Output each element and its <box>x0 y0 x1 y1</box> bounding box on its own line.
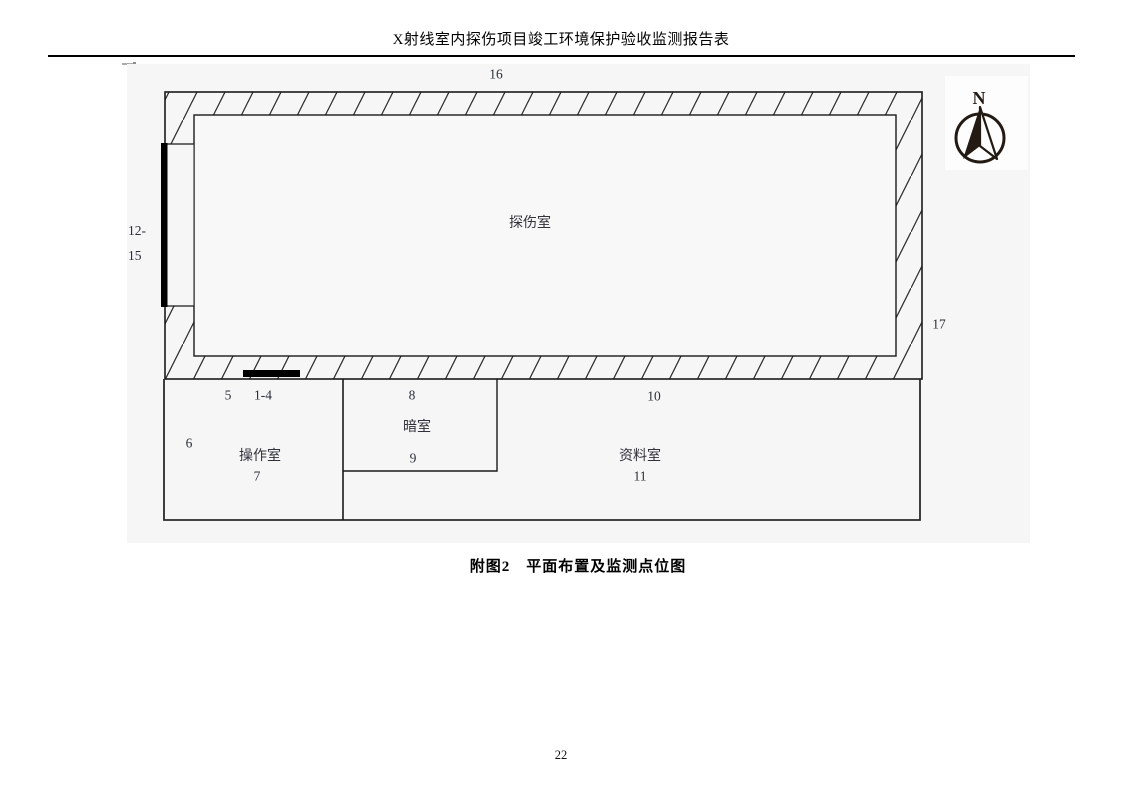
figure-caption: 附图2 平面布置及监测点位图 <box>0 555 1122 576</box>
bottom-lead-door-bar <box>243 370 300 377</box>
operation-room-label: 操作室 <box>239 450 281 464</box>
monitor-point-17-label: 17 <box>932 317 946 331</box>
monitor-point-5-label: 5 <box>225 388 232 402</box>
compass-background <box>945 76 1028 170</box>
floor-plan-drawing <box>127 64 1030 543</box>
monitor-point-7-label: 7 <box>254 469 261 483</box>
monitor-point-8-label: 8 <box>409 388 416 402</box>
monitor-point-6-label: 6 <box>186 436 193 450</box>
dataroom-label: 资料室 <box>619 450 661 464</box>
floor-plan-figure: 16 17 12- 15 探伤室 5 1-4 6 操作室 7 8 暗室 9 10… <box>127 64 1030 543</box>
monitor-point-12-15-label: 12- 15 <box>128 218 146 268</box>
page-number: 22 <box>0 748 1122 763</box>
detection-room-label: 探伤室 <box>509 217 551 231</box>
left-lead-door-bar <box>161 143 168 307</box>
monitor-point-11-label: 11 <box>634 469 647 483</box>
monitor-point-10-label: 10 <box>647 389 661 403</box>
detection-room-inner <box>194 115 896 356</box>
report-page: X射线室内探伤项目竣工环境保护验收监测报告表 <box>0 0 1122 793</box>
header-rule-line <box>48 55 1075 57</box>
page-header-title: X射线室内探伤项目竣工环境保护验收监测报告表 <box>0 28 1122 49</box>
monitor-point-9-label: 9 <box>410 451 417 465</box>
darkroom-label: 暗室 <box>403 421 431 435</box>
north-arrow-icon: N <box>973 89 986 107</box>
monitor-point-1-4-label: 1-4 <box>254 388 272 402</box>
monitor-point-16-label: 16 <box>489 67 503 81</box>
